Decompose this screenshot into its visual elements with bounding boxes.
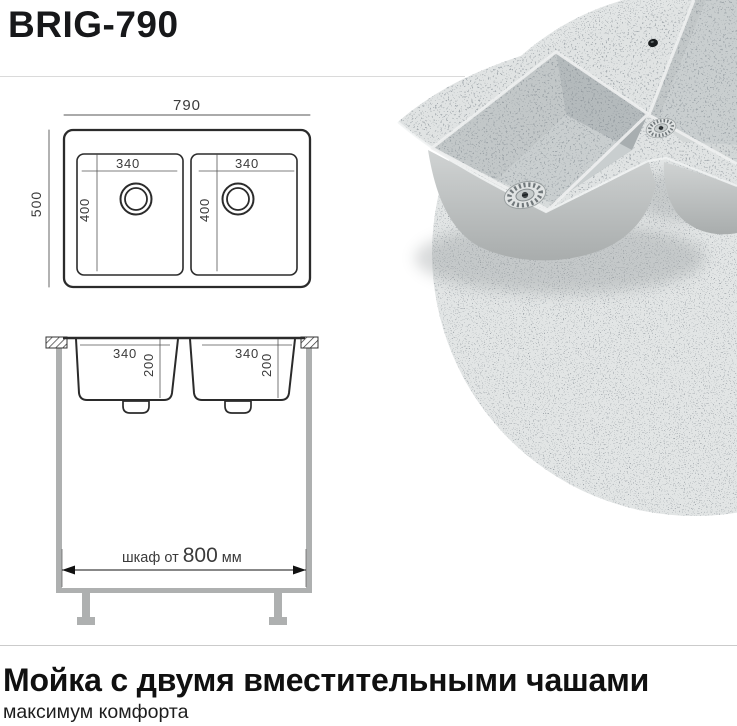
right-drain-section: [225, 401, 251, 413]
drain-circle-left: [121, 184, 152, 215]
dim-label-overall-width: 790: [173, 97, 201, 114]
dim-label-overall-depth: 500: [28, 191, 44, 217]
cabinet-foot-left: [77, 617, 95, 625]
dim-label-bowl2-width: 340: [235, 156, 259, 171]
left-drain-section: [123, 401, 149, 413]
dim-label-sec-bowl1-height: 200: [141, 353, 156, 377]
dim-label-bowl2-depth: 400: [197, 198, 212, 222]
arrowhead-right-icon: [293, 566, 306, 575]
cabinet-foot-right: [269, 617, 287, 625]
dim-label-sec-bowl1-width: 340: [113, 346, 137, 361]
cabinet-label-unit: мм: [218, 550, 242, 566]
cabinet-leg-left: [82, 593, 90, 618]
plan-view-drawing: 790 500 340 400 340 400: [28, 97, 310, 287]
dim-label-bowl1-width: 340: [116, 156, 140, 171]
bottom-divider-line: [0, 645, 737, 646]
left-bowl-plan: [77, 154, 183, 275]
cabinet-label-prefix: шкаф от: [122, 550, 183, 566]
dim-label-sec-bowl2-height: 200: [259, 353, 274, 377]
product-photo: [398, 0, 737, 516]
cabinet-leg-right: [274, 593, 282, 618]
product-heading: Мойка с двумя вместительными чашами: [3, 662, 649, 699]
product-title: BRIG-790: [8, 4, 179, 46]
dim-label-bowl1-depth: 400: [77, 198, 92, 222]
cabinet-left-side: [56, 348, 62, 592]
cabinet-label-value: 800: [183, 544, 218, 567]
drain-circle-right: [223, 184, 254, 215]
product-subheading: максимум комфорта: [3, 701, 189, 724]
cabinet-size-label: шкаф от 800 мм: [122, 544, 242, 567]
section-view-drawing: 340 200 340 200 шкаф от 800 мм: [46, 337, 318, 625]
technical-drawings-and-photo: 790 500 340 400 340 400: [0, 0, 737, 726]
cabinet-right-side: [306, 348, 312, 592]
arrowhead-left-icon: [62, 566, 75, 575]
dim-label-sec-bowl2-width: 340: [235, 346, 259, 361]
product-page: BRIG-790: [0, 0, 737, 726]
cabinet-bottom: [56, 588, 312, 593]
